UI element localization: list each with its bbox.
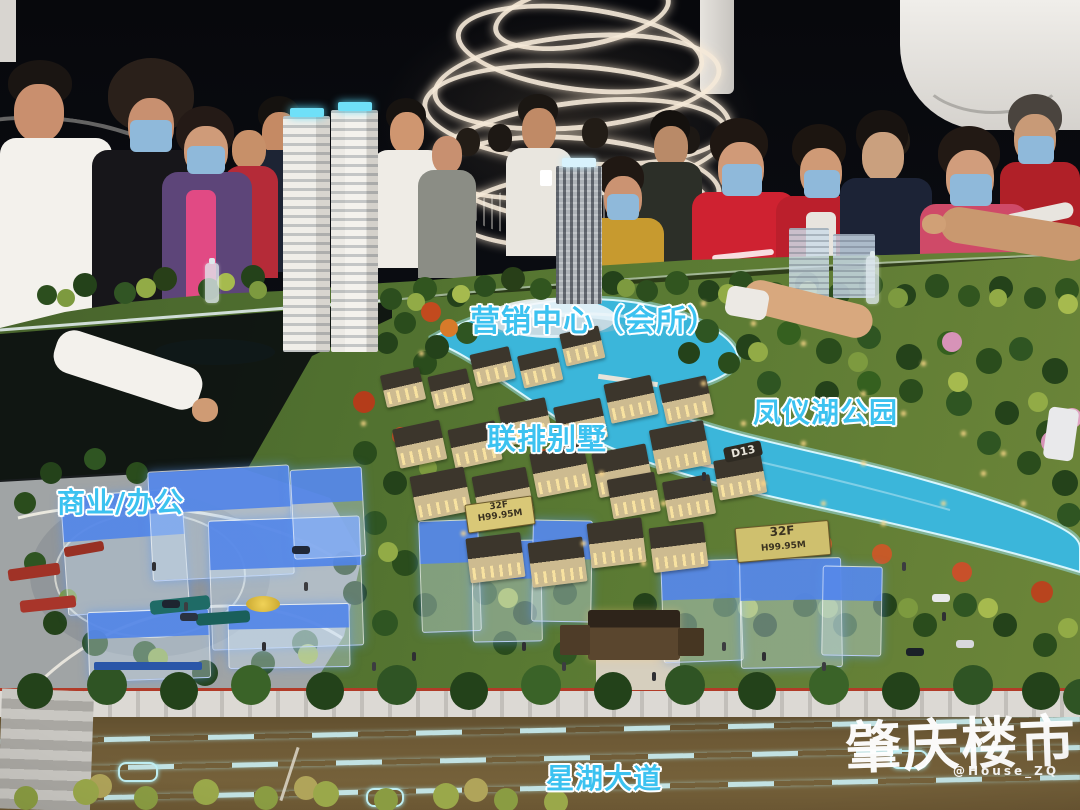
watermark-handle: @House_ZQ: [953, 764, 1059, 778]
gate-wing: [560, 625, 590, 655]
annotation-marketing-center: 营销中心（会所）: [470, 296, 718, 340]
model-house: [392, 420, 447, 469]
bus-lane-icon: [118, 762, 158, 782]
model-tower: [331, 110, 378, 352]
tower-led-cap: [338, 102, 372, 111]
model-tower: [556, 166, 602, 304]
model-house: [713, 453, 767, 501]
entrance-gate: [588, 610, 680, 660]
model-house: [380, 367, 426, 408]
residential-glass-tower: [821, 565, 883, 656]
commercial-building: [87, 608, 211, 682]
model-house: [527, 536, 587, 587]
tower-led-cap: [562, 158, 596, 167]
tower-led-cap: [290, 108, 324, 117]
bus-lane-icon: [366, 788, 404, 807]
sign-floors: 32F: [769, 523, 795, 539]
annotation-commercial-office: 商业/办公: [57, 481, 184, 521]
model-landscape-lights: [0, 0, 3, 3]
annotation-avenue: 星湖大道: [546, 757, 662, 797]
shop-awning: [94, 662, 202, 670]
model-house: [465, 532, 525, 583]
commercial-building: [290, 466, 367, 560]
model-house: [603, 375, 658, 424]
shop-logo-sign: [246, 596, 280, 612]
model-house: [469, 346, 515, 387]
model-house: [587, 517, 647, 568]
pointing-hand: [922, 214, 946, 234]
water-bottle: [866, 256, 879, 304]
model-house: [409, 467, 472, 522]
annotation-townhouses: 联排别墅: [487, 416, 607, 458]
model-tower: [283, 116, 330, 352]
figure-hand: [192, 398, 218, 422]
sign-height: H99.95M: [761, 540, 807, 554]
annotation-lake-park: 凤仪湖公园: [753, 391, 898, 431]
model-house: [649, 522, 709, 573]
gate-wing: [678, 628, 704, 656]
sales-center-photo: 32F H99.95M 32F H99.95M D13 营销中心（会所） 凤仪湖…: [0, 0, 1080, 810]
photo-watermark: 肇庆楼市 @House_ZQ: [845, 700, 1080, 800]
water-bottle: [205, 263, 219, 303]
model-house: [607, 472, 661, 520]
sign-height: H99.95M: [477, 508, 523, 524]
corner-steps: [0, 688, 94, 810]
